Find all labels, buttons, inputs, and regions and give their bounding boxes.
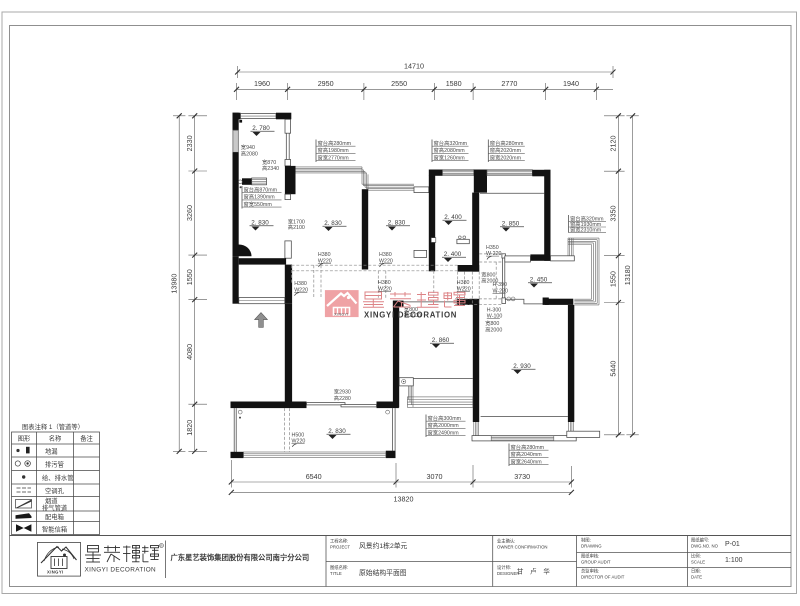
svg-text:H350: H350 [486,245,499,251]
svg-text:高2340: 高2340 [262,164,279,172]
svg-text:OWNER CONFIRMATION: OWNER CONFIRMATION [497,545,548,550]
svg-text:图表注释 1（管道等）: 图表注释 1（管道等） [22,422,84,431]
svg-text:名称: 名称 [49,434,62,443]
svg-text:13980: 13980 [170,274,179,294]
svg-text:H380: H380 [379,252,392,258]
svg-text:2950: 2950 [318,79,334,88]
svg-text:H380: H380 [457,280,470,286]
svg-text:6540: 6540 [306,472,322,481]
svg-text:空调孔: 空调孔 [45,486,65,495]
svg-text:窗高1390mm: 窗高1390mm [244,193,276,201]
svg-text:窗台高280mm: 窗台高280mm [490,139,524,147]
svg-text:图纸名称:: 图纸名称: [330,564,348,571]
svg-text:备注: 备注 [80,434,93,443]
svg-text:H380: H380 [378,280,391,286]
svg-text:DIRECTOR OF AUDIT: DIRECTOR OF AUDIT [581,575,625,580]
svg-text:工程名称:: 工程名称: [330,538,348,545]
svg-text:窗宽2020mm: 窗宽2020mm [490,153,522,161]
svg-text:窗台高300mm: 窗台高300mm [428,414,462,422]
svg-text:1550: 1550 [185,269,194,285]
svg-text:2120: 2120 [608,136,617,152]
svg-text:宽870: 宽870 [262,158,276,166]
svg-text:窗台高320mm: 窗台高320mm [434,139,468,147]
svg-text:H380: H380 [318,252,331,258]
svg-text:高2100: 高2100 [288,223,305,231]
svg-text:甘 卢 华: 甘 卢 华 [517,567,552,576]
svg-text:2770: 2770 [501,79,517,88]
svg-text:TITLE: TITLE [330,571,342,576]
svg-text:宽800: 宽800 [485,319,499,327]
svg-text:图纸审核:: 图纸审核: [581,553,599,560]
svg-text:SCALE: SCALE [691,560,705,565]
svg-text:宽940: 宽940 [241,143,255,151]
svg-text:智能信箱: 智能信箱 [42,525,67,534]
svg-text:1940: 1940 [563,79,579,88]
svg-text:制图:: 制图: [581,537,591,544]
svg-text:给、排水管: 给、排水管 [42,473,73,482]
svg-text:H380: H380 [294,281,307,287]
svg-text:GROUP AUDIT: GROUP AUDIT [581,560,611,565]
svg-text:广东星艺装饰集团股份有限公司南宁分公司: 广东星艺装饰集团股份有限公司南宁分公司 [171,553,310,562]
svg-text:地漏: 地漏 [45,447,58,456]
svg-text:1960: 1960 [254,79,270,88]
svg-text:高2280: 高2280 [334,394,351,402]
svg-text:4080: 4080 [185,344,194,360]
svg-text:窗宽2770mm: 窗宽2770mm [318,153,350,161]
svg-text:13820: 13820 [394,495,414,504]
svg-text:3260: 3260 [185,205,194,221]
svg-text:宽800: 宽800 [481,270,495,278]
svg-text:XINGYI: XINGYI [47,570,64,575]
svg-text:3350: 3350 [608,206,617,222]
svg-text:图纸编号:: 图纸编号: [691,537,709,544]
svg-text:窗台高280mm: 窗台高280mm [511,443,545,451]
svg-text:设计师:: 设计师: [497,564,511,571]
svg-text:窗台高870mm: 窗台高870mm [244,186,278,194]
svg-text:P-01: P-01 [725,541,740,548]
svg-text:1820: 1820 [185,420,194,436]
svg-text:图形: 图形 [18,435,31,443]
svg-text:H-300: H-300 [487,307,501,313]
svg-text:窗宽550mm: 窗宽550mm [244,200,273,208]
svg-text:13180: 13180 [623,265,632,285]
svg-text:1:100: 1:100 [725,557,743,564]
svg-text:比例:: 比例: [691,553,701,560]
svg-text:排污管: 排污管 [45,460,64,469]
svg-text:1580: 1580 [446,79,462,88]
svg-text:窗宽2490mm: 窗宽2490mm [428,428,460,436]
svg-text:3730: 3730 [514,472,530,481]
svg-text:宽2930: 宽2930 [334,388,351,396]
svg-text:窗高2040mm: 窗高2040mm [511,450,543,458]
svg-text:窗宽1260mm: 窗宽1260mm [434,153,466,161]
svg-text:窗台高280mm: 窗台高280mm [318,139,352,147]
svg-text:PROJECT: PROJECT [330,545,350,550]
svg-text:烟道: 烟道 [45,496,58,505]
svg-text:总监审核:: 总监审核: [581,568,599,575]
svg-text:窗高1980mm: 窗高1980mm [318,146,350,154]
svg-text:窗宽2640mm: 窗宽2640mm [511,457,543,465]
svg-text:H-390: H-390 [493,282,507,288]
svg-text:业主确认:: 业主确认: [497,538,515,545]
svg-text:窗高2020mm: 窗高2020mm [490,146,522,154]
svg-text:XINGYI: XINGYI [334,313,349,317]
svg-text:1550: 1550 [608,271,617,287]
svg-text:排气管道: 排气管道 [42,503,68,512]
svg-text:2330: 2330 [185,135,194,151]
svg-text:5440: 5440 [608,361,617,377]
svg-text:窗高2080mm: 窗高2080mm [434,146,466,154]
svg-text:14710: 14710 [404,62,424,71]
svg-text:高2080: 高2080 [241,150,258,158]
svg-text:DATE: DATE [691,575,702,580]
svg-text:XINGYI DECORATION: XINGYI DECORATION [85,567,157,574]
svg-text:窗高2000mm: 窗高2000mm [428,421,460,429]
svg-text:2550: 2550 [391,79,407,88]
svg-text:风景约1栋2单元: 风景约1栋2单元 [359,541,408,550]
svg-text:原始结构平面图: 原始结构平面图 [359,568,407,577]
svg-text:XINGYI DECORATION: XINGYI DECORATION [364,310,457,319]
svg-text:高2000: 高2000 [485,326,502,334]
svg-text:DRAWING: DRAWING [581,544,602,549]
svg-text:配电箱: 配电箱 [45,512,64,521]
svg-text:3070: 3070 [427,472,443,481]
svg-text:DWG.NO. NO: DWG.NO. NO [691,544,719,549]
